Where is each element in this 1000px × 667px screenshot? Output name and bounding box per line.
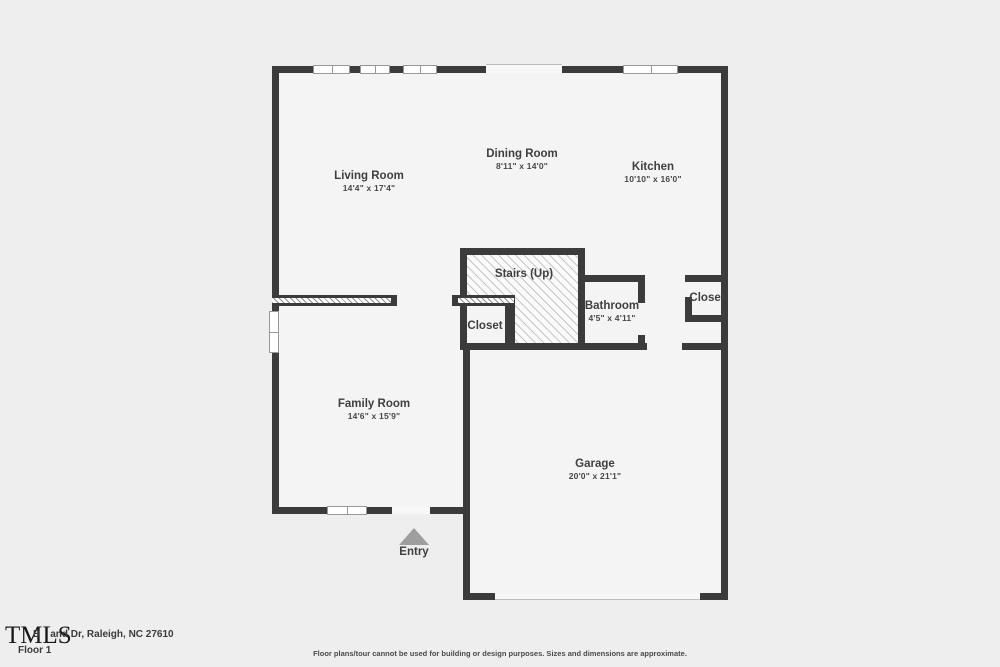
- wall-family-room-bottom: [272, 507, 470, 514]
- room-name-bathroom: Bathroom: [585, 300, 639, 313]
- entry-label: Entry: [399, 546, 428, 558]
- wall-garage-left: [463, 343, 470, 600]
- wall-bathroom-right-upper: [638, 275, 645, 303]
- entry-arrow-icon: [399, 528, 429, 545]
- wall-stairs-top: [460, 248, 585, 255]
- room-name-garage: Garage: [569, 458, 622, 471]
- room-label-hall-closet: Closet: [467, 320, 502, 333]
- room-dims-dining: 8'11" x 14'0": [486, 161, 558, 172]
- wall-exterior-right: [721, 66, 728, 600]
- room-label-kitchen: Kitchen 10'10" x 16'0": [624, 161, 681, 184]
- room-dims-garage: 20'0" x 21'1": [569, 471, 622, 482]
- room-label-stairs: Stairs (Up): [495, 268, 553, 281]
- window-kitchen-top: [623, 65, 678, 74]
- wall-upper-closet-bottom: [685, 315, 728, 322]
- property-address: B and Dr, Raleigh, NC 27610: [33, 629, 174, 640]
- room-name-living: Living Room: [334, 170, 404, 183]
- opening-top-dining: [486, 64, 562, 73]
- room-label-garage: Garage 20'0" x 21'1": [569, 458, 622, 481]
- room-name-stairs: Stairs (Up): [495, 268, 553, 281]
- address-prefix: B: [33, 629, 40, 640]
- room-name-family: Family Room: [338, 398, 410, 411]
- wall-upper-closet-top: [685, 275, 728, 282]
- room-dims-kitchen: 10'10" x 16'0": [624, 174, 681, 185]
- room-name-hall-closet: Closet: [467, 320, 502, 333]
- wall-garage-top: [460, 343, 728, 350]
- floor-plan-canvas: Living Room 14'4" x 17'4" Dining Room 8'…: [0, 0, 1000, 667]
- room-name-upper-closet: Closet: [689, 292, 724, 305]
- window-family-bottom: [327, 506, 367, 515]
- room-name-dining: Dining Room: [486, 148, 558, 161]
- disclaimer-text: Floor plans/tour cannot be used for buil…: [313, 649, 687, 658]
- garage-door-opening: [495, 593, 700, 600]
- window-family-left: [269, 311, 279, 353]
- room-label-upper-closet: Closet: [689, 292, 724, 305]
- room-label-family: Family Room 14'6" x 15'9": [338, 398, 410, 421]
- wall-exterior-left: [272, 66, 279, 514]
- room-dims-bathroom: 4'5" x 4'11": [585, 313, 639, 324]
- room-dims-living: 14'4" x 17'4": [334, 183, 404, 194]
- wall-bathroom-right-lower: [638, 335, 645, 350]
- window-top-3: [403, 65, 437, 74]
- room-dims-family: 14'6" x 15'9": [338, 411, 410, 422]
- entry-door-opening: [392, 507, 430, 514]
- room-name-kitchen: Kitchen: [624, 161, 681, 174]
- room-label-bathroom: Bathroom 4'5" x 4'11": [585, 300, 639, 323]
- room-label-living: Living Room 14'4" x 17'4": [334, 170, 404, 193]
- address-rest: and Dr, Raleigh, NC 27610: [50, 629, 173, 640]
- wall-bathroom-top: [578, 275, 645, 282]
- garage-hall-door-opening: [647, 343, 682, 350]
- railing-living-family: [272, 295, 397, 306]
- window-top-2: [360, 65, 390, 74]
- room-label-dining: Dining Room 8'11" x 14'0": [486, 148, 558, 171]
- floor-number-label: Floor 1: [18, 645, 51, 656]
- wall-stairs-right: [578, 248, 585, 350]
- railing-stairs-side: [452, 295, 514, 306]
- window-top-1: [313, 65, 350, 74]
